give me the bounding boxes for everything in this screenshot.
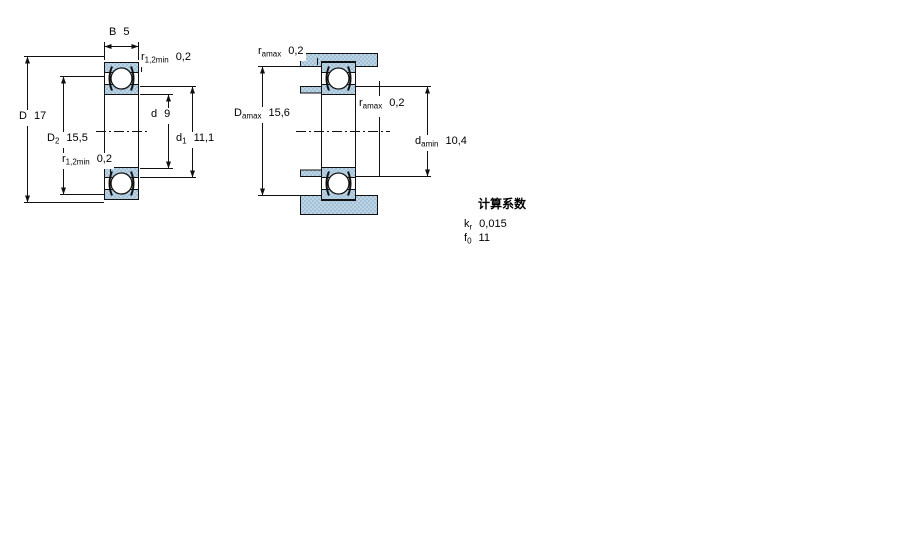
dim-label-shaft-shoulder: damin10,4 xyxy=(413,135,469,151)
bearing-section-bottom xyxy=(322,167,356,200)
bearing-section-top xyxy=(322,62,356,95)
dim-subscript: amax xyxy=(363,102,383,111)
dim-symbol: D xyxy=(19,110,27,122)
bearing-section-top xyxy=(105,62,139,95)
dim-value: 15,5 xyxy=(66,132,87,144)
shaft-shoulder-top xyxy=(301,87,322,94)
dim-value: 11,1 xyxy=(194,132,215,144)
dim-value: 0,2 xyxy=(288,45,303,57)
dim-label-ra-mid: ramax0,2 xyxy=(357,97,407,113)
factor-value: 11 xyxy=(479,232,490,244)
dim-subscript: 1,2min xyxy=(66,158,90,167)
dim-label-bore-diameter: d9 xyxy=(149,108,172,124)
dim-symbol: B xyxy=(109,26,116,38)
dim-symbol: D xyxy=(47,132,55,144)
dim-label-width: B5 xyxy=(107,26,131,42)
dim-symbol: D xyxy=(234,107,242,119)
factor-subscript: r xyxy=(470,223,473,232)
dim-label-r-top: r1,2min0,2 xyxy=(139,51,193,67)
bearing-diagram-svg xyxy=(0,0,900,560)
dim-value: 17 xyxy=(34,110,46,122)
dim-label-housing-shoulder: Damax15,6 xyxy=(232,107,292,123)
factor-row-f0: f011 xyxy=(464,232,490,246)
dim-symbol: d xyxy=(151,108,157,120)
dim-value: 5 xyxy=(123,26,129,38)
dim-label-recess-diameter: D215,5 xyxy=(45,132,90,148)
dim-label-shoulder-diameter: d111,1 xyxy=(174,132,216,148)
dim-subscript: 2 xyxy=(55,137,59,146)
dim-value: 10,4 xyxy=(445,135,466,147)
shaft-shoulder-bottom xyxy=(301,170,322,177)
dim-value: 0,2 xyxy=(176,51,191,63)
dim-subscript: 1,2min xyxy=(145,56,169,65)
bearing-section-bottom xyxy=(105,167,139,200)
calculation-factors-title: 计算系数 xyxy=(478,195,526,212)
dim-label-ra-top: ramax0,2 xyxy=(256,45,306,61)
dim-value: 0,2 xyxy=(389,97,404,109)
bearing-drawing-page: B5 r1,2min0,2 D17 D215,5 d9 d111,1 r1,2m… xyxy=(0,0,900,560)
dim-value: 15,6 xyxy=(269,107,290,119)
dim-subscript: amin xyxy=(421,140,438,149)
factor-row-kr: kr0,015 xyxy=(464,218,507,232)
dim-subscript: amax xyxy=(262,50,282,59)
dim-value: 9 xyxy=(164,108,170,120)
factor-value: 0,015 xyxy=(479,218,507,230)
right-view xyxy=(258,54,431,215)
dim-label-outer-diameter: D17 xyxy=(17,110,48,126)
factor-subscript: 0 xyxy=(467,237,471,246)
dim-label-r-mid: r1,2min0,2 xyxy=(60,153,114,169)
dim-subscript: amax xyxy=(242,112,262,121)
dim-subscript: 1 xyxy=(182,137,186,146)
dim-value: 0,2 xyxy=(97,153,112,165)
